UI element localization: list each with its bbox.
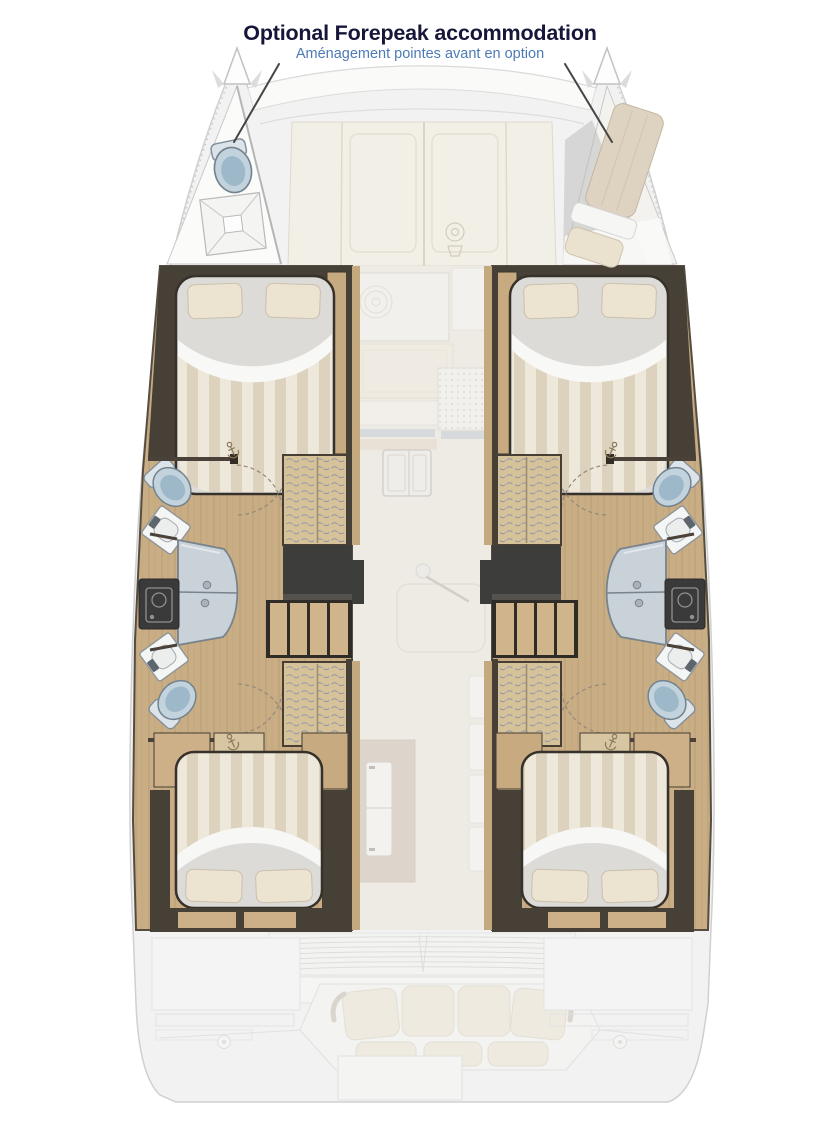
refrigerator-icon (353, 740, 415, 882)
catamaran-floorplan (0, 0, 828, 1129)
shower-cubicle (178, 540, 238, 645)
galley-sink-icon (383, 450, 431, 496)
galley-stove-icon (357, 273, 449, 341)
foredeck-panel (288, 122, 556, 266)
washer-icon (139, 579, 179, 629)
aft-double-berth (176, 752, 322, 908)
aft-grating (268, 933, 576, 975)
port-hull-interior (133, 266, 364, 932)
forepeak-shower-tray-icon (200, 193, 266, 256)
bow-tip-starboard (582, 48, 632, 88)
bow-tip-port (212, 48, 262, 88)
starboard-hull-interior (480, 266, 711, 932)
boat-plan-page: Optional Forepeak accommodation Aménagem… (0, 0, 828, 1129)
companionway-steps (266, 600, 352, 658)
companionway-landing (283, 545, 352, 602)
